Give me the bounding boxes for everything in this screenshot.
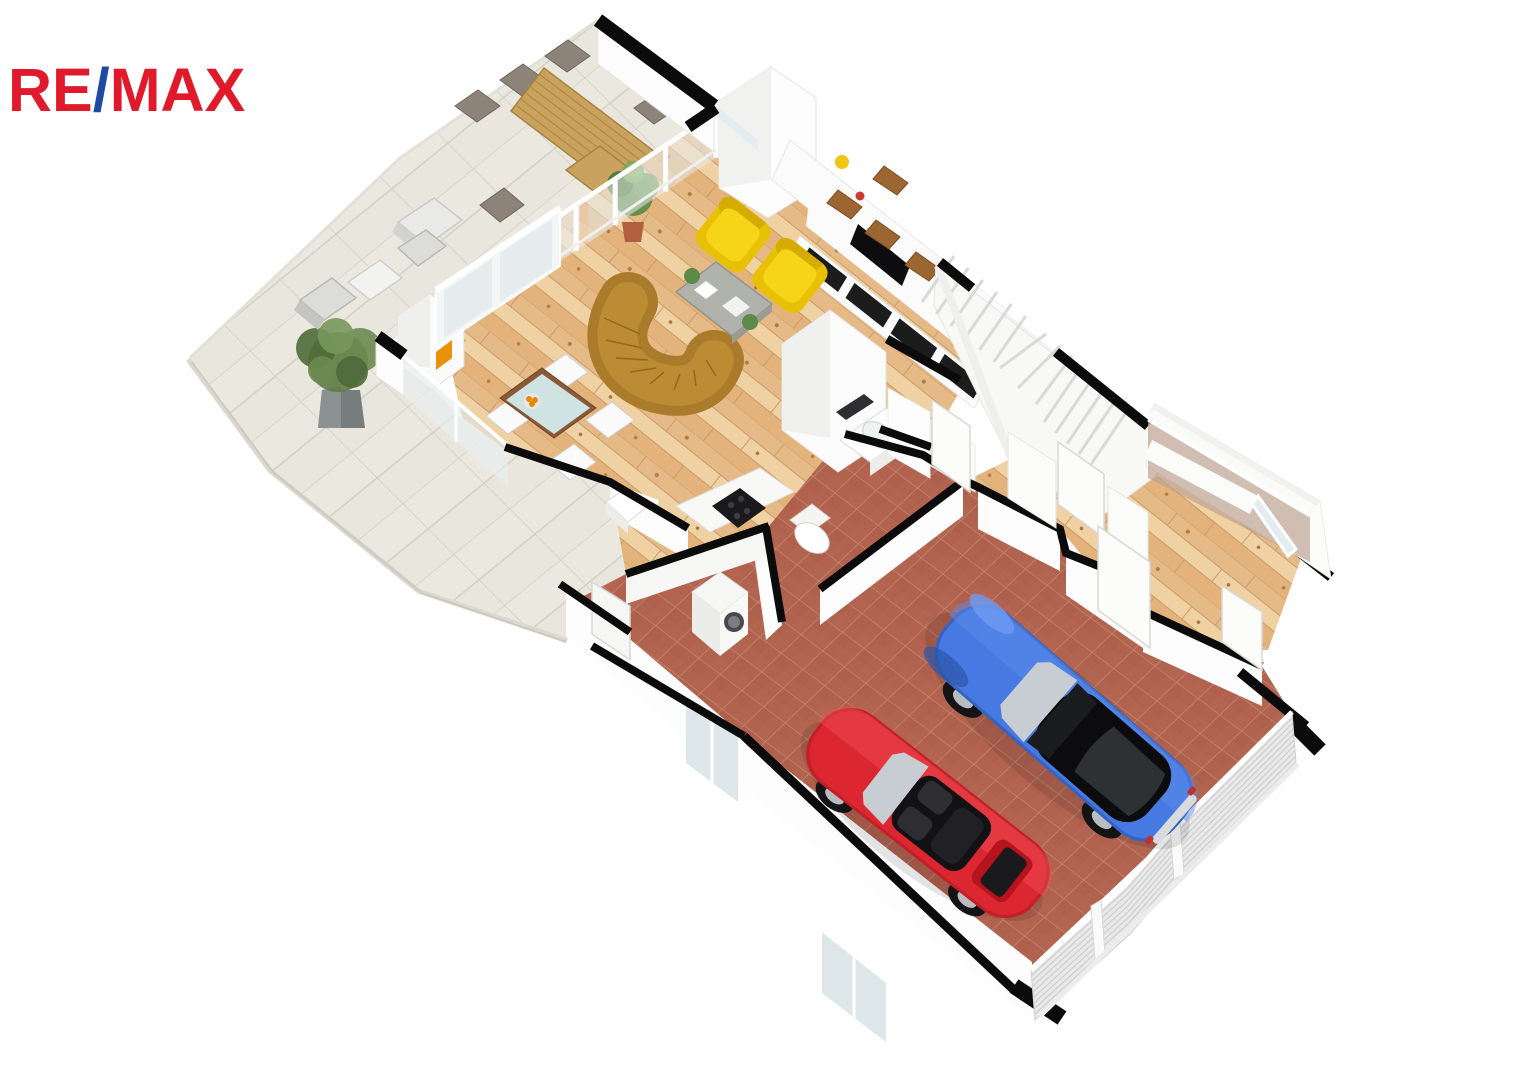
svg-text:RE/MAX: RE/MAX [8, 56, 246, 124]
